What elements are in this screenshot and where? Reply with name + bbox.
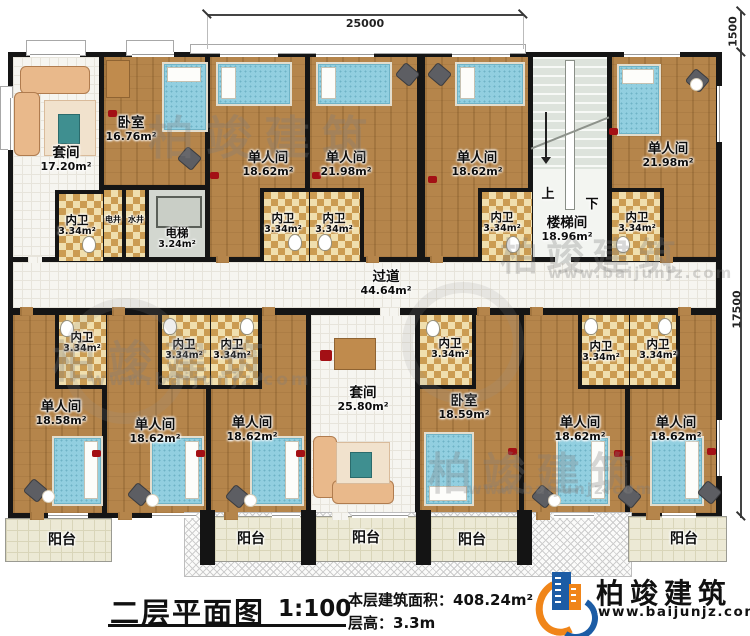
window [662,513,696,518]
balcony-label: 阳台 [352,531,380,547]
window [316,52,374,57]
room-label-single-top-1: 单人间18.62m² [242,151,293,178]
bed [52,436,103,506]
room-label-single-top-2: 单人间21.98m² [320,151,371,178]
lamp [244,494,257,507]
stair-arrow [545,112,547,158]
wall-tv [614,450,623,457]
lamp [146,494,159,507]
window [48,513,88,518]
dimension-extension [523,15,524,49]
toilet-icon [82,236,96,253]
window [717,86,722,142]
toilet-icon [506,236,520,253]
dimension-extension [207,15,208,49]
door-opening [262,307,275,316]
wall-tv [196,450,205,457]
toilet-icon [426,320,440,337]
desk [334,338,376,370]
door-opening [530,307,543,316]
balcony-door [332,512,348,520]
balcony-label: 阳台 [458,533,486,549]
sofa [20,66,90,94]
window [272,513,300,518]
room-label-bedroom-bottom: 卧室18.59m² [438,394,489,421]
toilet-icon [318,234,332,251]
room-label-single-bottom-2: 单人间18.62m² [129,418,180,445]
bathroom-label: 内卫3.34m² [483,211,521,235]
bathroom-label: 内卫3.34m² [264,212,302,236]
toilet-icon [240,318,254,335]
wall-tv [508,448,517,455]
room-label-single-top-3: 单人间18.62m² [451,151,502,178]
column [200,510,215,565]
floor-height-label: 层高： [348,614,393,632]
balcony-door [30,512,44,520]
dimension-right-top: 1500 [727,11,740,53]
stairwell-label: 楼梯间18.96m² [541,216,592,243]
tea-table [350,452,372,478]
bathroom-label: 内卫3.34m² [639,338,677,362]
wall-tv [296,450,305,457]
toilet-icon [163,318,177,335]
wall-tv [210,172,219,179]
balcony-label: 阳台 [670,532,698,548]
elevator-car [156,196,202,228]
room-label-bedroom-top: 卧室16.76m² [105,116,156,143]
window [152,513,196,518]
stair-up-label: 上 [541,188,554,203]
toilet-icon [616,236,630,253]
toilet-icon [584,318,598,335]
scale-label: 1:100 [278,596,351,622]
elevator-label: 电梯3.24m² [158,227,196,251]
window [220,52,278,57]
window [30,52,80,57]
door-opening [477,307,490,316]
dimension-top-width: 25000 [330,17,400,30]
floor-plan-page: 25000 1500 17500 [0,0,750,636]
toilet-icon [288,234,302,251]
window [8,98,13,150]
title-underline [108,624,346,627]
dimension-line-top [207,14,523,16]
column [301,510,316,565]
door-opening [555,256,571,263]
lamp [548,494,561,507]
lamp [690,78,703,91]
desk-chair [320,350,332,361]
balcony-door [118,512,132,520]
window [452,52,510,57]
corridor-label: 过道44.64m² [360,270,411,297]
stair-arrow-head [541,157,551,164]
bathroom-label: 内卫3.34m² [165,338,203,362]
floor-height-line: 层高：3.3m [348,612,435,633]
bed [455,62,525,106]
bed [250,436,304,506]
room-area: 17.20m² [40,161,91,173]
window [132,52,174,57]
bed [162,62,208,132]
column [517,510,532,565]
shaft-electric-label: 电井 [105,216,121,225]
door-opening [216,256,229,263]
dimension-line-right-top [740,12,742,53]
door-opening [20,307,33,316]
brand-website: www.baijunjz.com [598,604,750,620]
bed [556,436,610,506]
bathroom-label: 内卫3.34m² [315,212,353,236]
bathroom-label: 内卫3.34m² [213,338,251,362]
floor-area-value: 408.24m² [453,591,533,609]
door-opening [678,307,691,316]
bed [424,432,474,506]
door-opening [660,256,673,263]
room-label-suite-bottom: 套间25.80m² [337,386,388,413]
balcony-door [536,512,550,520]
bathroom-label: 内卫3.34m² [582,340,620,364]
sofa [14,92,40,156]
wall-tv [707,448,716,455]
bathroom-label: 内卫3.34m² [618,211,656,235]
room-label-suite-top: 套间 17.20m² [40,146,91,173]
balcony-door [646,512,660,520]
room-name: 套间 [40,146,91,161]
window [624,52,680,57]
door-opening [430,256,443,263]
bed [617,64,661,136]
wall-tv [428,176,437,183]
bathroom-label: 内卫3.34m² [63,331,101,355]
lamp [42,490,55,503]
column [416,510,431,565]
balcony-label: 阳台 [237,532,265,548]
door-opening [366,256,379,263]
stair-down-label: 下 [585,198,598,213]
room-label-single-top-4: 单人间21.98m² [642,142,693,169]
floor-area-line: 本层建筑面积：408.24m² [348,589,533,610]
brand-logo-icon [536,570,588,630]
balcony-label: 阳台 [48,533,76,549]
bed [650,436,704,506]
wall-tv [92,450,101,457]
bathroom-label: 内卫3.34m² [58,214,96,238]
bed [216,62,292,106]
room-label-single-bottom-3: 单人间18.62m² [226,416,277,443]
toilet-icon [658,318,672,335]
window [554,513,594,518]
wall-tv [609,128,618,135]
door-opening [380,307,400,316]
shaft-water-label: 水井 [128,216,144,225]
door-opening [28,256,42,263]
tea-table [58,114,80,144]
floor-area-label: 本层建筑面积： [348,591,453,609]
bathroom-label: 内卫3.34m² [431,337,469,361]
door-opening [112,307,125,316]
dresser [106,60,130,98]
bed [150,436,204,506]
balcony-door [224,512,238,520]
window [717,420,722,476]
floor-height-value: 3.3m [393,614,435,632]
window [352,513,408,518]
bed [316,62,392,106]
room-label-single-bottom-4: 单人间18.62m² [554,416,605,443]
dimension-right-side: 17500 [731,282,744,338]
room-label-single-bottom-5: 单人间18.62m² [650,416,701,443]
room-label-single-bottom-1: 单人间18.58m² [35,400,86,427]
